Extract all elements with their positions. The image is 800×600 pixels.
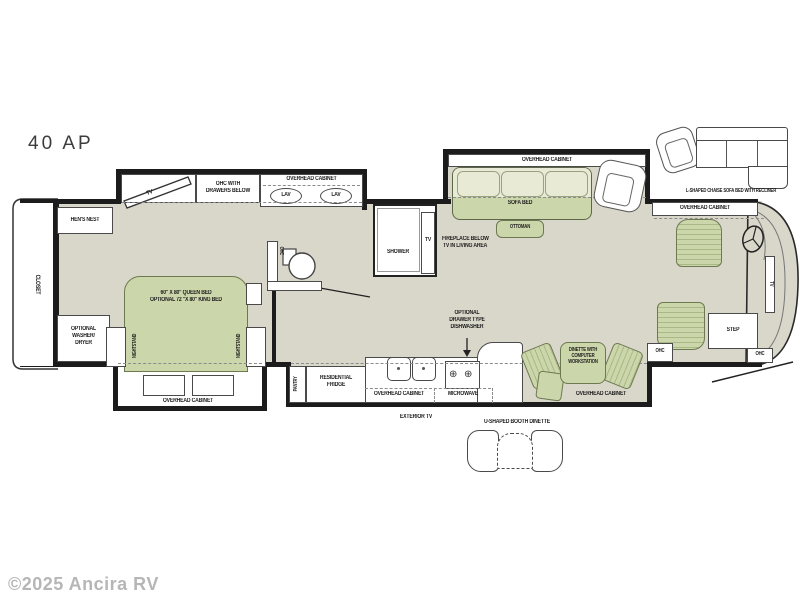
bath-overhead-cabinet-label: OVERHEAD CABINET xyxy=(269,176,353,183)
burner-icon: ⊕ xyxy=(464,369,472,380)
slide-line xyxy=(122,202,362,203)
toilet-ohc-label: OHC xyxy=(277,244,283,257)
sofa-cushion xyxy=(545,171,588,197)
dinette-overhead-cabinet-label: OVERHEAD CABINET xyxy=(575,391,628,398)
front-tv-label: TV xyxy=(767,274,773,294)
toilet-counter xyxy=(267,281,322,291)
bed-drawer xyxy=(143,375,185,396)
divider xyxy=(263,185,360,186)
sink-drain xyxy=(397,367,400,370)
sink-drain xyxy=(422,367,425,370)
booth-option-label: U-SHAPED BOOTH DINETTE xyxy=(484,419,550,426)
lav-label: LAV xyxy=(272,192,299,199)
cooktop: ⊕ ⊕ xyxy=(445,361,480,389)
wall xyxy=(113,406,267,411)
dishwasher-note: OPTIONALDRAWER TYPEDISHWASHER xyxy=(438,310,496,331)
divider xyxy=(726,141,727,167)
booth-bench xyxy=(531,430,563,472)
divider xyxy=(757,141,758,167)
bedroom-tv-cabinet xyxy=(121,174,196,203)
dishwasher-arrow xyxy=(463,338,471,357)
sofa-cushion xyxy=(457,171,500,197)
slide-line xyxy=(118,363,262,364)
bed-label: 60" X 80" QUEEN BEDOPTIONAL 72 "X 80" KI… xyxy=(124,290,248,304)
step-label: STEP xyxy=(712,327,755,334)
wall xyxy=(113,362,118,411)
booth-bench xyxy=(467,430,499,472)
option-sofa-label: L-SHAPED CHAISE SOFA BED WITH RECLINER xyxy=(676,189,787,195)
shower-label: SHOWER xyxy=(378,249,417,256)
fireplace-tv-label: TV xyxy=(421,238,435,244)
washer-dryer-label: OPTIONALWASHER/DRYER xyxy=(57,326,110,347)
ohc-with-drawers-label: OHC WITHDRAWERS BELOW xyxy=(196,181,260,195)
toilet-bowl xyxy=(289,253,315,279)
floorplan: 40 AP ©2025 Ancira RV xyxy=(0,0,800,600)
captain-chair xyxy=(676,219,722,267)
exterior-tv-label: EXTERIOR TV xyxy=(391,414,442,421)
lav-label: LAV xyxy=(322,192,349,199)
cockpit-overhead-cabinet-label: OVERHEAD CABINET xyxy=(660,205,750,212)
sofa-cushion xyxy=(501,171,544,197)
divider xyxy=(492,388,493,403)
counter-lower-line xyxy=(365,388,491,389)
option-sofa-chaise xyxy=(748,166,788,189)
fireplace-note: FIREPLACE BELOWTV IN LIVING AREA xyxy=(438,236,492,250)
wall xyxy=(262,362,267,411)
nightstand xyxy=(246,327,266,367)
wall xyxy=(647,362,652,407)
divider xyxy=(434,388,435,403)
pantry-label: PANTRY xyxy=(294,372,300,396)
ohc-right-label: OHC xyxy=(749,352,771,358)
nightstand-label: NIGHTSTAND xyxy=(133,331,139,360)
bath-door-swing xyxy=(320,288,370,297)
wall xyxy=(272,288,276,364)
fridge-label: RESIDENTIALFRIDGE xyxy=(306,375,366,389)
dinette-label: DINETTE WITHCOMPUTERWORKSTATION xyxy=(560,348,606,365)
hens-nest-label: HEN'S NEST xyxy=(61,217,109,224)
burner-icon: ⊕ xyxy=(449,369,457,380)
bed-cabinet xyxy=(246,283,262,305)
plan-lines xyxy=(0,0,800,600)
ottoman-label: OTTOMAN xyxy=(500,225,541,231)
sofa-bed-label: SOFA BED xyxy=(495,200,546,207)
closet-label: CLOSET xyxy=(33,270,40,298)
kitchen-overhead-cabinet-label: OVERHEAD CABINET xyxy=(372,391,426,398)
bed-overhead-cabinet-label: OVERHEAD CABINET xyxy=(146,398,231,405)
bed-drawer xyxy=(192,375,234,396)
booth-table xyxy=(497,433,533,469)
option-sofa-seats xyxy=(696,140,788,168)
shower-pan xyxy=(377,208,420,272)
nightstand-label: NIGHTSTAND xyxy=(237,331,243,360)
ohc-left-label: OHC xyxy=(649,349,671,355)
wall xyxy=(650,362,762,367)
nightstand xyxy=(106,327,126,367)
microwave-label: MICROWAVE xyxy=(440,391,486,398)
